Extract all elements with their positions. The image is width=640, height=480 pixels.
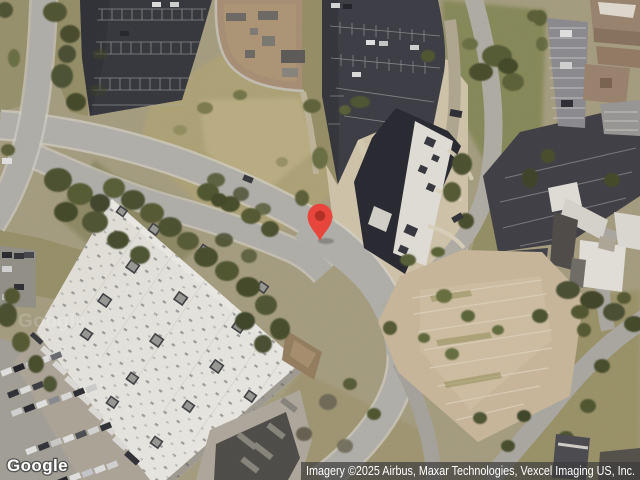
svg-text:Google: Google (7, 456, 68, 475)
svg-text:Google: Google (18, 311, 86, 332)
svg-text:Imagery ©2025 Airbus, Maxar Te: Imagery ©2025 Airbus, Maxar Technologies… (306, 464, 635, 478)
